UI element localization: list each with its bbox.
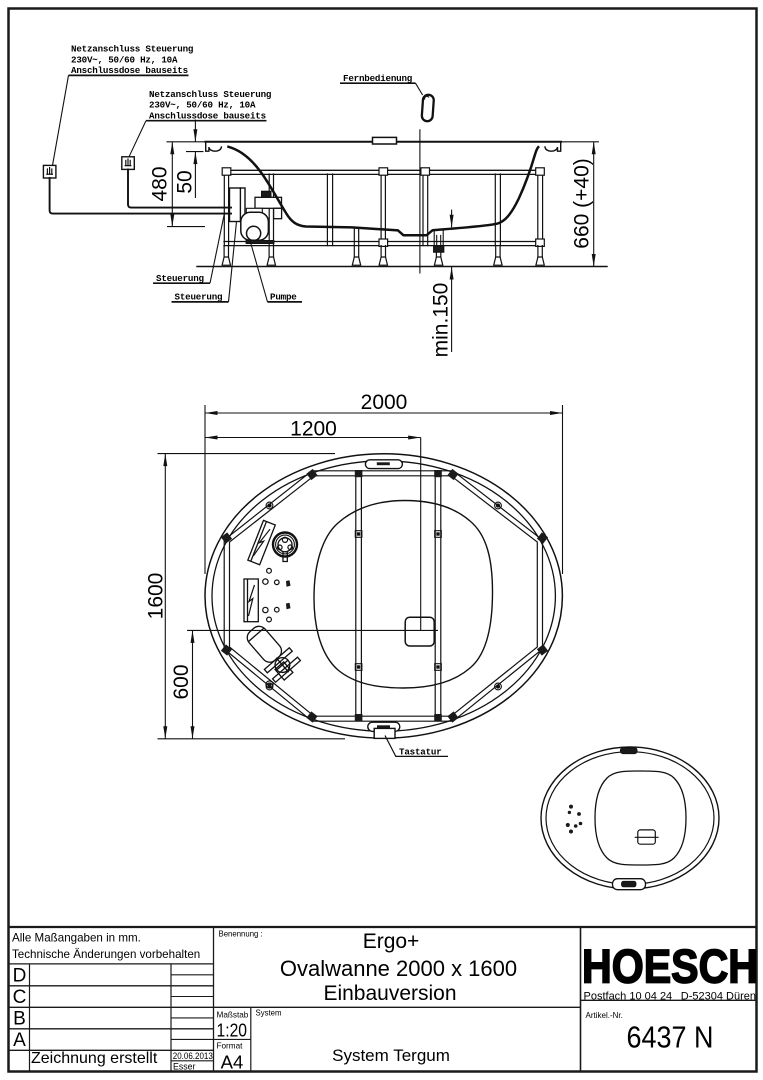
svg-text:Maßstab: Maßstab (217, 1010, 249, 1019)
svg-text:B: B (13, 1009, 26, 1030)
svg-text:1200: 1200 (290, 418, 337, 441)
svg-text:1:20: 1:20 (217, 1020, 248, 1041)
svg-text:min.150: min.150 (430, 283, 453, 358)
svg-text:Ovalwanne 2000 x 1600: Ovalwanne 2000 x 1600 (280, 956, 517, 981)
svg-text:System Tergum: System Tergum (332, 1046, 450, 1065)
svg-text:Alle Maßangaben in mm.: Alle Maßangaben in mm. (12, 931, 141, 944)
svg-text:230V~, 50/60 Hz, 10A: 230V~, 50/60 Hz, 10A (71, 54, 178, 65)
svg-text:A: A (13, 1030, 26, 1051)
svg-text:D: D (13, 966, 27, 987)
svg-text:D-52304 Düren: D-52304 Düren (681, 991, 756, 1003)
svg-text:Netzanschluss Steuerung: Netzanschluss Steuerung (71, 44, 193, 55)
svg-text:600: 600 (170, 664, 193, 699)
svg-text:Anschlussdose bauseits: Anschlussdose bauseits (71, 65, 188, 76)
svg-text:HOESCH: HOESCH (582, 939, 758, 992)
svg-text:Ergo+: Ergo+ (363, 930, 420, 953)
svg-text:6437 N: 6437 N (627, 1020, 714, 1054)
svg-text:Benennung :: Benennung : (219, 930, 263, 939)
svg-text:Esser: Esser (173, 1061, 196, 1071)
svg-text:1600: 1600 (145, 573, 168, 620)
svg-text:660 (+40): 660 (+40) (571, 158, 594, 248)
svg-text:Artikel.-Nr.: Artikel.-Nr. (586, 1011, 623, 1020)
svg-text:Postfach 10 04 24: Postfach 10 04 24 (584, 991, 673, 1003)
svg-text:C: C (13, 987, 27, 1008)
svg-text:Zeichnung erstellt: Zeichnung erstellt (31, 1050, 158, 1067)
svg-text:Einbauversion: Einbauversion (323, 982, 456, 1005)
svg-text:Netzanschluss Steuerung: Netzanschluss Steuerung (149, 89, 271, 100)
svg-text:20.06.2013: 20.06.2013 (173, 1051, 213, 1061)
svg-text:230V~, 50/60 Hz, 10A: 230V~, 50/60 Hz, 10A (149, 100, 256, 111)
svg-text:50: 50 (174, 170, 197, 193)
svg-text:Tastatur: Tastatur (399, 746, 442, 757)
svg-text:Technische Änderungen vorbehal: Technische Änderungen vorbehalten (12, 948, 200, 961)
svg-text:Format: Format (217, 1042, 244, 1051)
svg-text:System: System (256, 1009, 282, 1018)
svg-text:2000: 2000 (361, 391, 408, 414)
svg-text:480: 480 (149, 166, 172, 201)
svg-text:A4: A4 (221, 1052, 244, 1073)
